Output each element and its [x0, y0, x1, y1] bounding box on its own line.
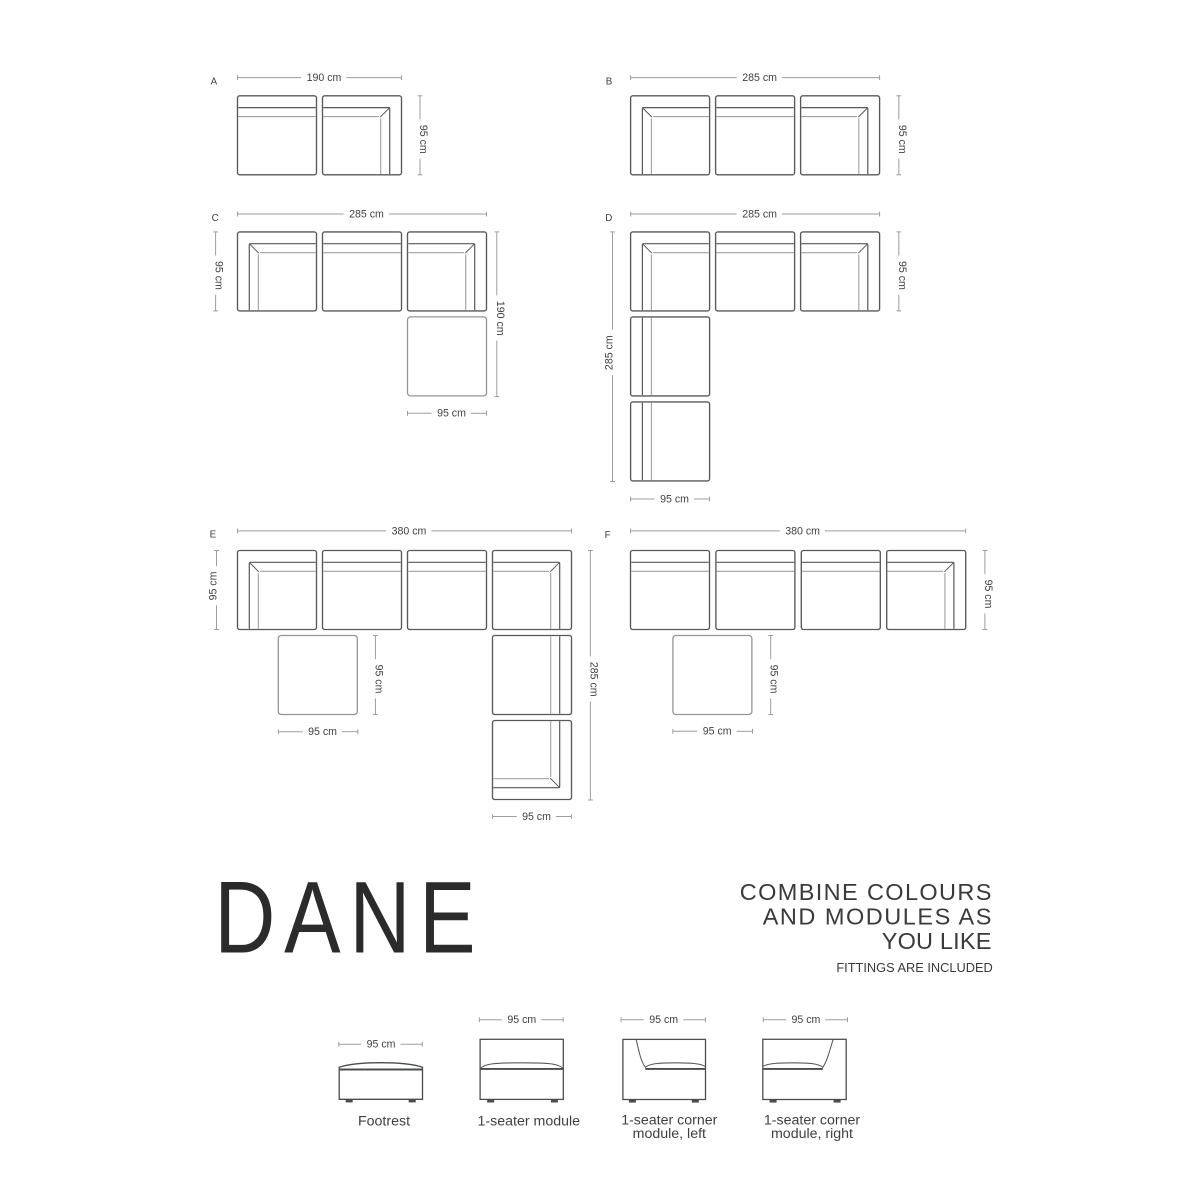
svg-text:95 cm: 95 cm — [417, 125, 429, 154]
svg-text:95 cm: 95 cm — [660, 493, 689, 505]
svg-text:module, right: module, right — [771, 1126, 853, 1142]
svg-text:285 cm: 285 cm — [742, 72, 777, 84]
svg-text:1-seater module: 1-seater module — [478, 1113, 581, 1129]
svg-text:95 cm: 95 cm — [649, 1014, 678, 1026]
svg-text:95 cm: 95 cm — [308, 726, 337, 738]
svg-text:285 cm: 285 cm — [742, 208, 777, 220]
svg-text:95 cm: 95 cm — [437, 408, 466, 420]
svg-text:380 cm: 380 cm — [785, 525, 820, 537]
svg-text:95 cm: 95 cm — [896, 125, 908, 154]
svg-text:190 cm: 190 cm — [494, 301, 506, 336]
svg-text:285 cm: 285 cm — [604, 335, 616, 370]
svg-text:95 cm: 95 cm — [372, 665, 384, 694]
svg-text:E: E — [210, 530, 217, 541]
svg-text:95 cm: 95 cm — [982, 580, 994, 609]
svg-text:285 cm: 285 cm — [587, 662, 599, 697]
svg-text:Footrest: Footrest — [358, 1113, 410, 1129]
svg-text:YOU LIKE: YOU LIKE — [882, 928, 992, 954]
svg-text:95 cm: 95 cm — [896, 261, 908, 290]
svg-text:190 cm: 190 cm — [307, 72, 342, 84]
svg-text:FITTINGS ARE INCLUDED: FITTINGS ARE INCLUDED — [836, 960, 992, 975]
svg-text:95 cm: 95 cm — [791, 1014, 820, 1026]
svg-text:95 cm: 95 cm — [213, 261, 225, 290]
svg-text:C: C — [212, 213, 219, 224]
svg-text:D: D — [605, 213, 612, 224]
svg-text:95 cm: 95 cm — [208, 571, 220, 600]
svg-text:F: F — [605, 530, 611, 541]
svg-text:95 cm: 95 cm — [768, 665, 780, 694]
svg-text:380 cm: 380 cm — [392, 525, 427, 537]
svg-text:module, left: module, left — [633, 1126, 706, 1142]
svg-text:95 cm: 95 cm — [507, 1014, 536, 1026]
svg-text:DANE: DANE — [214, 860, 484, 974]
svg-text:95 cm: 95 cm — [522, 811, 551, 823]
svg-text:285 cm: 285 cm — [349, 208, 384, 220]
svg-text:A: A — [211, 77, 218, 88]
svg-text:95 cm: 95 cm — [703, 726, 732, 738]
svg-text:95 cm: 95 cm — [367, 1039, 396, 1051]
svg-text:B: B — [606, 77, 613, 88]
